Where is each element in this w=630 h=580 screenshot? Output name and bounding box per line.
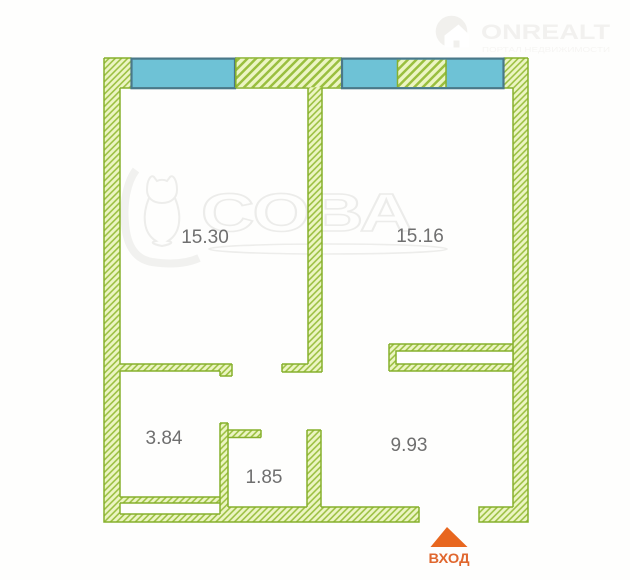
svg-text:3.84: 3.84 <box>146 428 183 449</box>
svg-text:ВХОД: ВХОД <box>429 550 470 566</box>
svg-text:15.16: 15.16 <box>396 226 444 247</box>
svg-text:ONREALT: ONREALT <box>481 21 610 44</box>
svg-text:15.30: 15.30 <box>181 227 229 248</box>
svg-text:1.85: 1.85 <box>246 467 283 488</box>
svg-text:9.93: 9.93 <box>391 435 428 456</box>
svg-text:СОВА: СОВА <box>201 183 413 243</box>
svg-text:ПОРТАЛ НЕДВИЖИМОСТИ: ПОРТАЛ НЕДВИЖИМОСТИ <box>482 45 610 54</box>
